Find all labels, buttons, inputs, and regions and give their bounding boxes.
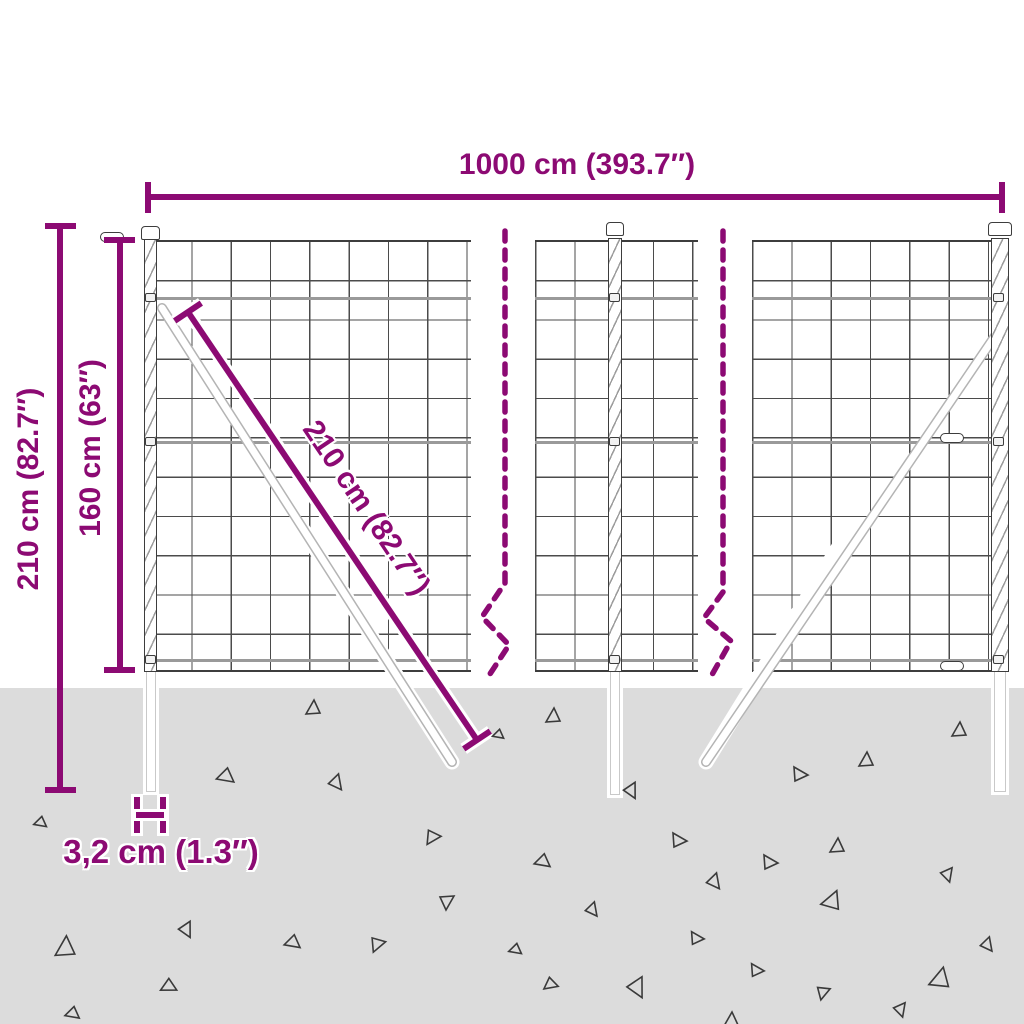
dimension-width-line xyxy=(148,194,1005,200)
ground-triangle xyxy=(830,838,844,852)
brace-left xyxy=(162,308,452,762)
clamp xyxy=(993,655,1004,664)
ground-triangle xyxy=(422,829,441,848)
ground-triangle xyxy=(178,921,197,940)
dimension-post-width-bar-mid xyxy=(136,812,164,818)
ground-triangle xyxy=(585,902,603,920)
ground-triangle xyxy=(540,977,558,995)
ground-triangle xyxy=(859,752,873,766)
clamp xyxy=(145,293,156,302)
dimension-post-width-label: 3,2 cm (1.3″) xyxy=(63,833,259,871)
ground-triangle xyxy=(491,729,504,742)
ground-triangle xyxy=(623,782,642,801)
ground-triangle xyxy=(440,896,454,910)
post-cap-left xyxy=(141,226,160,240)
ground-triangle xyxy=(532,853,550,871)
ground-triangle xyxy=(673,833,687,847)
ground-triangle xyxy=(368,937,386,955)
break-line-left xyxy=(482,231,509,680)
clamp xyxy=(993,293,1004,302)
dimension-width-tick-right xyxy=(999,182,1005,213)
ground-triangle xyxy=(328,774,348,794)
dimension-mesh-height-tick-bottom xyxy=(104,667,135,673)
post-middle xyxy=(608,238,622,672)
ground-triangle xyxy=(55,936,75,956)
ground-triangle xyxy=(63,1006,79,1022)
clamp xyxy=(993,437,1004,446)
dimension-mesh-height-label: 160 cm (63″) xyxy=(74,359,108,537)
brace-right xyxy=(706,333,997,762)
ground-triangle xyxy=(929,965,952,988)
dimension-total-height-label: 210 cm (82.7″) xyxy=(12,388,46,591)
ground-triangle xyxy=(816,987,831,1002)
ground-triangle xyxy=(507,943,521,957)
dimension-diagonal-line xyxy=(175,303,491,749)
clamp xyxy=(609,655,620,664)
ground-triangle xyxy=(980,937,998,955)
dimension-total-height-line xyxy=(57,226,63,790)
post-cap-right xyxy=(988,222,1012,236)
dimension-width-tick-left xyxy=(145,182,151,213)
ground-triangle xyxy=(32,816,46,830)
ground-triangle xyxy=(794,767,808,781)
post-left xyxy=(144,238,157,672)
ground-triangle xyxy=(214,768,234,788)
post-cap-middle xyxy=(606,222,624,236)
ground-triangle xyxy=(306,700,320,714)
dimension-total-height-tick-top xyxy=(45,223,76,229)
break-line-right xyxy=(704,231,731,680)
ground-triangle xyxy=(724,1012,738,1024)
ground-triangle xyxy=(821,887,844,910)
ground-triangle xyxy=(626,977,651,1002)
ground-triangle xyxy=(706,873,726,893)
ground-triangle xyxy=(546,708,560,722)
clamp xyxy=(145,655,156,664)
ground-triangle xyxy=(952,722,966,736)
ground-triangle xyxy=(893,1003,909,1019)
ground-triangle xyxy=(692,932,705,945)
fence-dimension-diagram: 1000 cm (393.7″) 210 cm (82.7″) 160 cm (… xyxy=(0,0,1024,1024)
ground-triangle xyxy=(764,855,778,869)
clamp xyxy=(145,437,156,446)
ground-triangle xyxy=(158,978,177,997)
dimension-total-height-tick-bottom xyxy=(45,787,76,793)
dimension-mesh-height-line xyxy=(117,240,123,672)
clamp xyxy=(609,437,620,446)
clamp xyxy=(609,293,620,302)
ground-triangle xyxy=(282,934,300,952)
tensioner xyxy=(940,433,964,443)
tensioner xyxy=(940,661,964,671)
ground-triangle xyxy=(752,964,765,977)
dimension-mesh-height-tick-top xyxy=(104,237,135,243)
post-right xyxy=(991,238,1009,672)
ground-triangle xyxy=(940,868,956,884)
dimension-width-label: 1000 cm (393.7″) xyxy=(459,148,695,182)
